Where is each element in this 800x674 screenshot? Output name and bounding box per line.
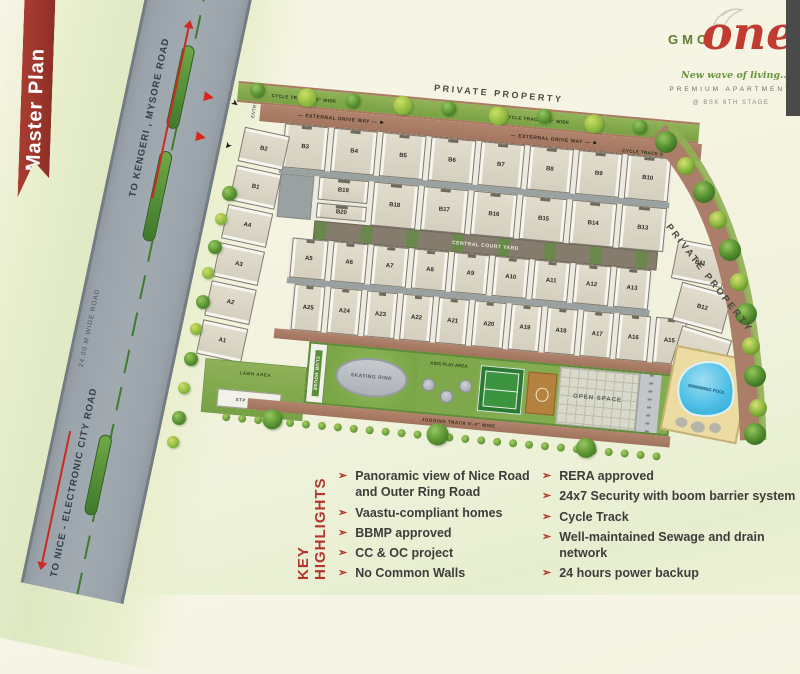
plot-a10: A10 xyxy=(491,256,530,299)
arrow-right-icon: ► xyxy=(379,120,386,127)
plot-a23: A23 xyxy=(363,290,398,339)
plot-a24: A24 xyxy=(327,287,362,336)
highlight-item: ➢Well-maintained Sewage and drain networ… xyxy=(542,529,797,562)
plot-a9: A9 xyxy=(451,252,490,295)
basketball-court xyxy=(525,371,558,415)
bush-icon xyxy=(509,439,518,448)
play-equipment-icon xyxy=(459,379,473,393)
plot-b3: B3 xyxy=(281,123,329,171)
plot-b18: B18 xyxy=(370,182,419,230)
highlight-item: ➢No Common Walls xyxy=(338,565,543,581)
plot-b14: B14 xyxy=(569,200,618,248)
bush-icon xyxy=(222,413,231,422)
bullet-arrow-icon: ➢ xyxy=(542,488,551,504)
plot-a25: A25 xyxy=(290,284,325,333)
plot-b17: B17 xyxy=(420,186,469,234)
plot-a5: A5 xyxy=(289,237,328,280)
tree-icon xyxy=(488,106,509,127)
plot-b6: B6 xyxy=(428,137,476,185)
bullet-arrow-icon: ➢ xyxy=(338,468,347,501)
bush-icon xyxy=(477,436,486,445)
brand-tagline: New wave of living... xyxy=(640,70,790,81)
play-equipment-icon xyxy=(421,378,435,392)
highlights-left-column: ➢Panoramic view of Nice Road and Outer R… xyxy=(338,468,543,586)
brand-one: one xyxy=(702,10,795,56)
plot-a21: A21 xyxy=(435,297,470,346)
tree-icon xyxy=(190,323,202,335)
tree-icon xyxy=(202,267,214,279)
bush-icon xyxy=(413,430,422,439)
plot-b5: B5 xyxy=(379,132,427,180)
kids-play-area: KIDS PLAY AREA xyxy=(415,353,480,416)
highlight-item: ➢Cycle Track xyxy=(542,509,797,525)
exit-direction-arrow-icon xyxy=(195,131,207,143)
tree-icon xyxy=(178,382,190,394)
plot-b15: B15 xyxy=(519,195,568,243)
bullet-arrow-icon: ➢ xyxy=(542,529,551,562)
plot-a22: A22 xyxy=(399,294,434,343)
bullet-arrow-icon: ➢ xyxy=(542,565,551,581)
bush-icon xyxy=(541,442,550,451)
tennis-court xyxy=(477,365,525,415)
brand-stage: @ BSK 6TH STAGE xyxy=(670,100,792,106)
tree-icon xyxy=(297,87,318,108)
bush-icon xyxy=(238,414,247,423)
parking-strip xyxy=(277,173,315,220)
tree-icon xyxy=(441,100,457,116)
highlight-item: ➢RERA approved xyxy=(542,468,797,484)
master-plan-title: Master Plan xyxy=(22,22,50,172)
bush-icon xyxy=(652,452,661,461)
plot-b4: B4 xyxy=(330,128,378,176)
bush-icon xyxy=(461,435,470,444)
plot-a12: A12 xyxy=(572,263,611,306)
plot-a4: A4 xyxy=(221,204,273,248)
bush-icon xyxy=(397,429,406,438)
play-equipment-icon xyxy=(440,390,454,404)
plot-b1: B1 xyxy=(229,165,281,209)
plot-b19: B19 xyxy=(317,177,369,204)
brand-subtitle: PREMIUM APARTMENT xyxy=(640,86,792,93)
tree-icon xyxy=(196,295,210,309)
tree-icon xyxy=(575,437,597,459)
bullet-arrow-icon: ➢ xyxy=(338,565,347,581)
plot-b9: B9 xyxy=(575,150,623,198)
b19-b20-column: B19 B20 xyxy=(315,177,369,225)
bush-icon xyxy=(381,427,390,436)
plot-a18: A18 xyxy=(543,307,578,356)
plot-a17: A17 xyxy=(579,310,614,359)
highlight-item: ➢24 hours power backup xyxy=(542,565,797,581)
entry-direction-arrow-icon xyxy=(203,91,215,103)
bush-icon xyxy=(604,448,613,457)
bush-icon xyxy=(333,423,342,432)
bush-icon xyxy=(525,440,534,449)
plot-b8: B8 xyxy=(526,146,574,194)
plot-a20: A20 xyxy=(471,300,506,349)
plot-a2: A2 xyxy=(204,281,256,325)
highlight-item: ➢Panoramic view of Nice Road and Outer R… xyxy=(338,468,543,501)
bush-icon xyxy=(493,438,502,447)
plot-b16: B16 xyxy=(470,191,519,239)
plot-a7: A7 xyxy=(370,245,409,288)
plot-a6: A6 xyxy=(330,241,369,284)
bush-icon xyxy=(286,419,295,428)
road-median-icon xyxy=(141,150,173,243)
highlights-right-column: ➢RERA approved➢24x7 Security with boom b… xyxy=(542,468,797,586)
bullet-arrow-icon: ➢ xyxy=(338,545,347,561)
brand-logo: GMC one New wave of living... PREMIUM AP… xyxy=(640,8,792,116)
tree-icon xyxy=(184,352,198,366)
plot-a19: A19 xyxy=(507,304,542,353)
arrow-right-icon: ► xyxy=(592,140,599,147)
bush-icon xyxy=(557,443,566,452)
plot-a8: A8 xyxy=(410,249,449,292)
tree-icon xyxy=(167,436,179,448)
tree-icon xyxy=(392,95,413,116)
bullet-arrow-icon: ➢ xyxy=(542,509,551,525)
tree-icon xyxy=(208,240,222,254)
external-driveway-label: — EXTERNAL DRIVE WAY — ► xyxy=(298,112,386,126)
corner-bar xyxy=(786,0,800,116)
skating-area: SKATING RINK xyxy=(323,345,420,411)
plot-b7: B7 xyxy=(477,141,525,189)
plot-a11: A11 xyxy=(532,260,571,303)
road-median-icon xyxy=(83,434,113,517)
plot-b20: B20 xyxy=(316,203,367,222)
bush-icon xyxy=(302,420,311,429)
highlight-item: ➢CC & OC project xyxy=(338,545,543,561)
bush-icon xyxy=(254,416,263,425)
bush-icon xyxy=(349,424,358,433)
tree-icon xyxy=(215,213,227,225)
bush-icon xyxy=(365,426,374,435)
skating-rink: SKATING RINK xyxy=(334,355,409,400)
bullet-arrow-icon: ➢ xyxy=(542,468,551,484)
tree-icon xyxy=(249,82,265,98)
bush-icon xyxy=(318,422,327,431)
bullet-arrow-icon: ➢ xyxy=(338,505,347,521)
highlight-item: ➢Vaastu-compliant homes xyxy=(338,505,543,521)
highlight-item: ➢24x7 Security with boom barrier system xyxy=(542,488,797,504)
tree-icon xyxy=(345,93,361,109)
tree-icon xyxy=(222,186,237,201)
highlight-item: ➢BBMP approved xyxy=(338,525,543,541)
key-highlights-title: KEY HIGHLIGHTS xyxy=(295,474,329,580)
tree-icon xyxy=(261,409,283,431)
tree-icon xyxy=(584,113,605,134)
tree-icon xyxy=(172,411,186,425)
bullet-arrow-icon: ➢ xyxy=(338,525,347,541)
